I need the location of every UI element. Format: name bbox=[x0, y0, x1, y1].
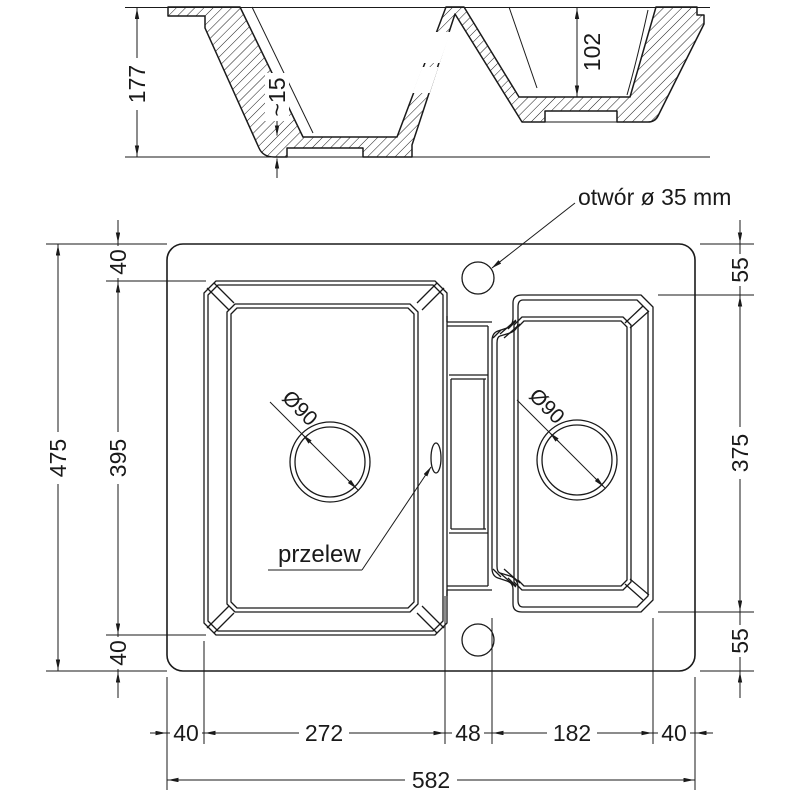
left-drain-dim-text: Ø90 bbox=[277, 386, 321, 430]
divider-channel bbox=[447, 316, 492, 596]
overflow-callout: przelew bbox=[268, 467, 431, 570]
dim-right-bowl-depth: 102 bbox=[577, 8, 605, 98]
dim-right-bottom-text: 55 bbox=[727, 628, 753, 654]
drawing-canvas: 177 ~15 102 bbox=[0, 0, 800, 800]
dim-overall-height-text: 475 bbox=[45, 439, 71, 477]
dim-bottom-divider-text: 48 bbox=[455, 720, 481, 746]
overflow-slot-lower bbox=[414, 68, 437, 92]
dim-left-top-text: 40 bbox=[105, 249, 131, 275]
faucet-hole-top bbox=[462, 262, 494, 294]
section-view: 177 ~15 102 bbox=[124, 7, 710, 178]
dim-bottom-right-margin-text: 40 bbox=[661, 720, 687, 746]
dim-right-bowl-text: 375 bbox=[727, 434, 753, 472]
faucet-hole-bottom bbox=[462, 624, 494, 656]
dim-right-bowl-depth-text: 102 bbox=[579, 33, 605, 71]
right-drain-dim-text: Ø90 bbox=[524, 384, 568, 428]
overflow-oval bbox=[431, 443, 441, 473]
right-bowl-rim-inner bbox=[497, 300, 648, 607]
hole-label: otwór ø 35 mm bbox=[578, 184, 731, 210]
dim-right-column: 55 375 55 bbox=[727, 220, 753, 698]
dim-overall-height: 475 bbox=[45, 244, 71, 671]
divider-rear-edge bbox=[509, 7, 537, 88]
sink-shell-section bbox=[168, 7, 704, 157]
right-bowl-floor-outer bbox=[514, 317, 631, 590]
dim-left-bowl-text: 395 bbox=[105, 439, 131, 477]
dim-left-bottom-text: 40 bbox=[105, 640, 131, 666]
sink-technical-drawing: 177 ~15 102 bbox=[0, 0, 800, 800]
overflow-slot-upper bbox=[425, 33, 449, 62]
dim-overall-width-text: 582 bbox=[412, 767, 450, 793]
right-drain-dim: Ø90 bbox=[517, 384, 605, 488]
dim-overall-width: 582 bbox=[167, 767, 695, 793]
right-bowl bbox=[492, 295, 653, 612]
dim-total-depth-text: 177 bbox=[124, 65, 150, 103]
dim-floor-thickness-text: ~15 bbox=[264, 77, 290, 116]
dim-left-column: 40 395 40 bbox=[105, 220, 131, 698]
right-bowl-rim-outer bbox=[492, 295, 653, 612]
dim-total-depth: 177 bbox=[124, 8, 150, 158]
hole-callout: otwór ø 35 mm bbox=[492, 184, 731, 268]
right-bowl-floor-inner bbox=[518, 321, 627, 586]
dim-bottom-left-bowl-text: 272 bbox=[305, 720, 343, 746]
dim-bottom-row: 40 272 48 182 40 bbox=[150, 720, 713, 746]
left-drain-dim: Ø90 bbox=[270, 386, 358, 490]
dim-bottom-right-bowl-text: 182 bbox=[553, 720, 591, 746]
dim-bottom-left-margin-text: 40 bbox=[173, 720, 199, 746]
plan-view: otwór ø 35 mm przelew Ø90 Ø90 bbox=[45, 184, 754, 793]
dim-right-top-text: 55 bbox=[727, 257, 753, 283]
overflow-label: przelew bbox=[278, 541, 361, 568]
right-bowl-corner-chamfers bbox=[493, 306, 649, 600]
